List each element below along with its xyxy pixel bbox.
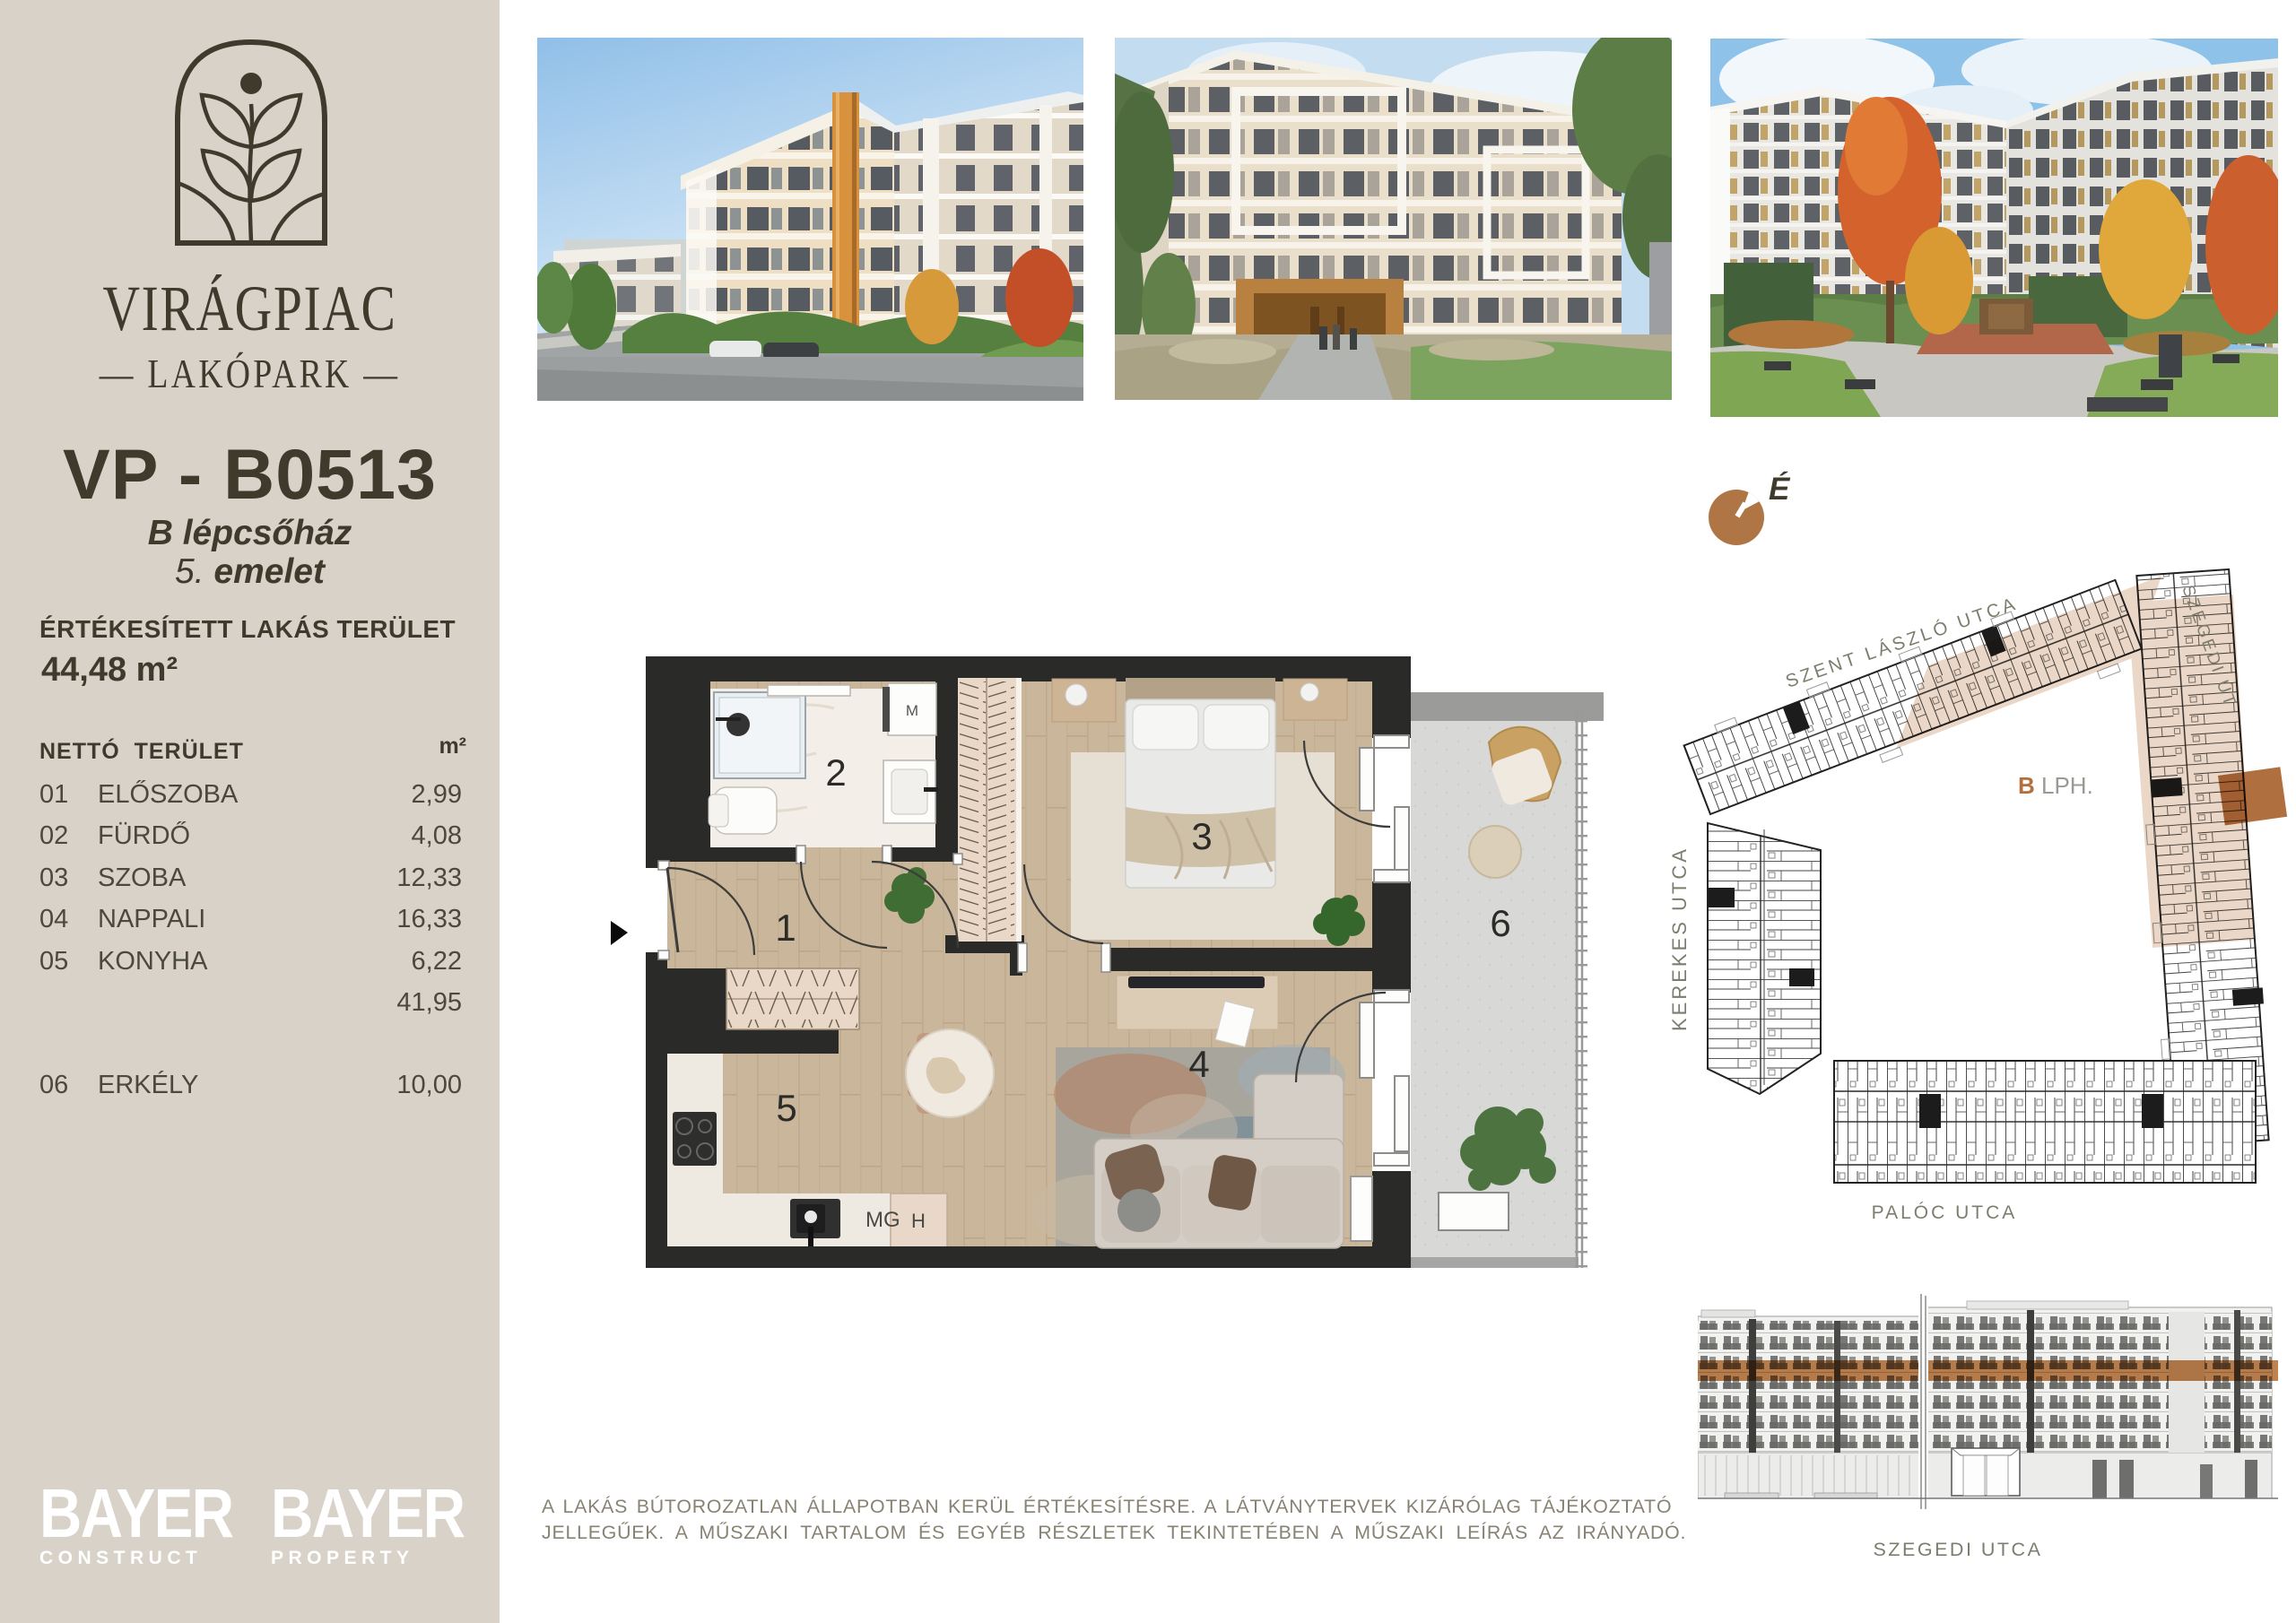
svg-text:MG: MG [865, 1208, 900, 1232]
svg-text:M: M [906, 702, 918, 719]
svg-text:2: 2 [825, 751, 846, 794]
svg-text:5: 5 [776, 1087, 796, 1129]
svg-text:3: 3 [1191, 815, 1212, 857]
svg-text:1: 1 [775, 907, 796, 949]
svg-text:4: 4 [1188, 1043, 1209, 1085]
svg-text:H: H [911, 1210, 926, 1232]
svg-text:6: 6 [1490, 902, 1510, 944]
